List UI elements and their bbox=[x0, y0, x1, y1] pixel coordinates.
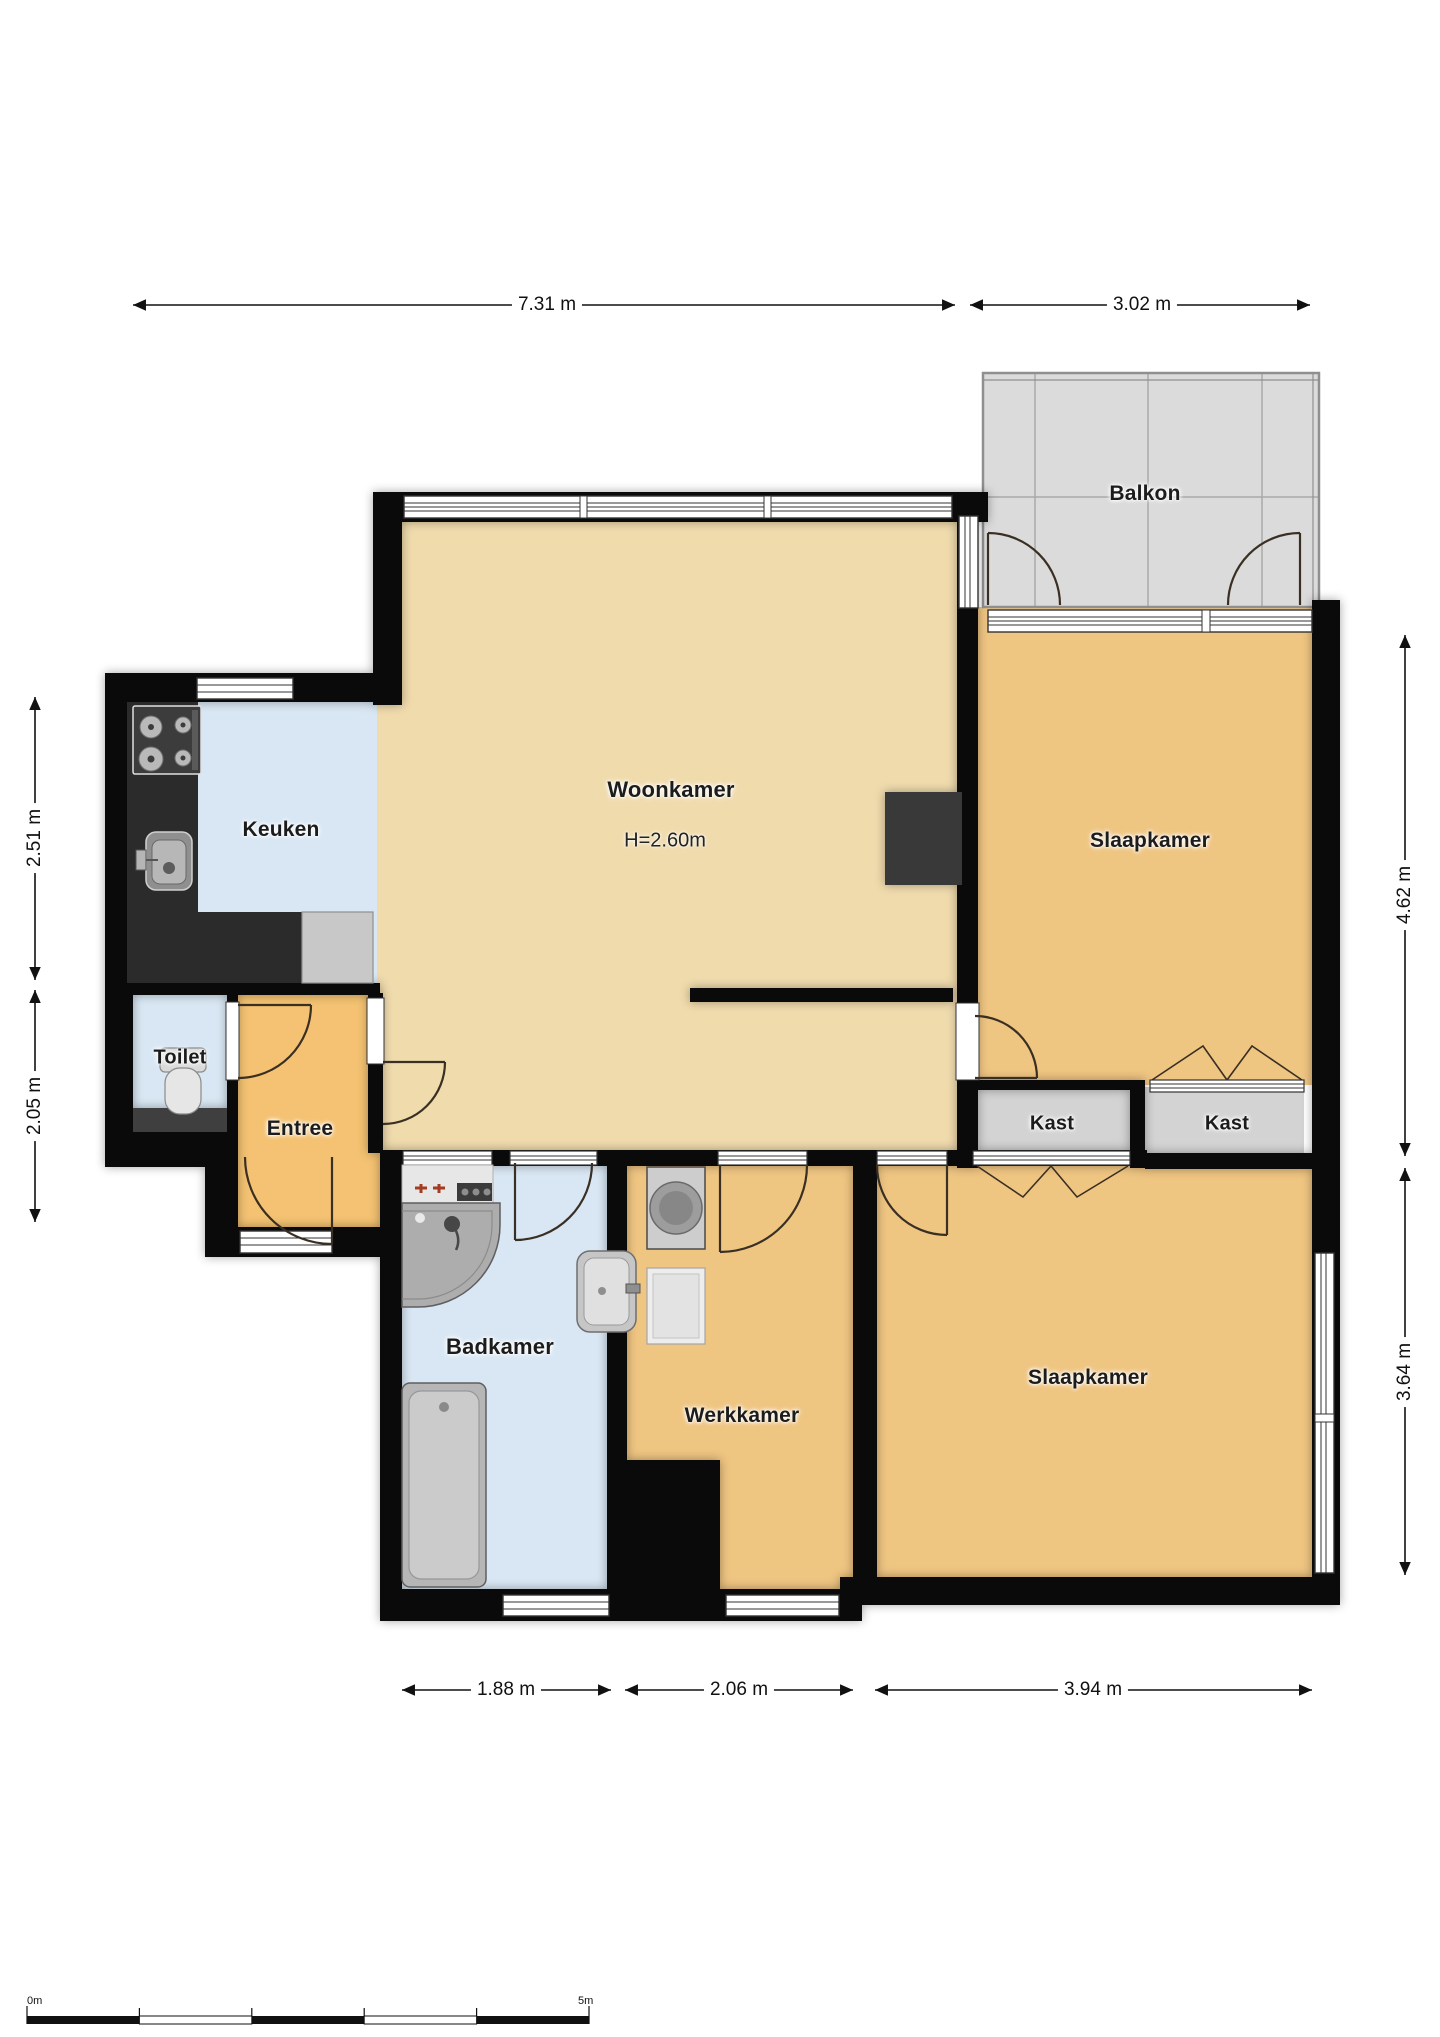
badkamer-floor bbox=[402, 1150, 610, 1590]
dim-bottom-badkamer: 1.88 m bbox=[471, 1679, 541, 1701]
werkkamer-window bbox=[726, 1595, 839, 1616]
dim-bottom-slaapkamer: 3.94 m bbox=[1058, 1679, 1128, 1701]
badkamer-window bbox=[503, 1595, 609, 1616]
scale-bar bbox=[27, 2006, 589, 2024]
keuken-label: Keuken bbox=[242, 818, 319, 842]
balkon-label: Balkon bbox=[1109, 482, 1180, 506]
scale-end-label: 5m bbox=[578, 1995, 593, 2007]
scale-start-label: 0m bbox=[27, 1995, 42, 2007]
dim-right-slaapkamer-boven: 4.62 m bbox=[1394, 860, 1416, 930]
kast-links-label: Kast bbox=[1030, 1113, 1074, 1136]
dim-top-main: 7.31 m bbox=[512, 294, 582, 316]
kast-rechts-label: Kast bbox=[1205, 1113, 1249, 1136]
keuken-floor bbox=[127, 690, 377, 995]
dim-bottom-werkkamer: 2.06 m bbox=[704, 1679, 774, 1701]
dim-left-entree: 2.05 m bbox=[24, 1071, 46, 1141]
slaapkamer-onder-window bbox=[1315, 1253, 1334, 1573]
slaapkamer-boven-label: Slaapkamer bbox=[1090, 829, 1210, 853]
woonkamer-label: Woonkamer bbox=[607, 777, 734, 803]
dim-left-keuken: 2.51 m bbox=[24, 803, 46, 873]
entree-label: Entree bbox=[267, 1117, 334, 1141]
dim-top-balkon: 3.02 m bbox=[1107, 294, 1177, 316]
werkkamer-label: Werkkamer bbox=[685, 1404, 800, 1428]
slaapkamer-onder-label: Slaapkamer bbox=[1028, 1366, 1148, 1390]
werkkamer-floor bbox=[625, 1150, 853, 1590]
toilet-label: Toilet bbox=[153, 1047, 206, 1070]
dim-right-slaapkamer-onder: 3.64 m bbox=[1394, 1337, 1416, 1407]
woonkamer-height-label: H=2.60m bbox=[624, 830, 706, 853]
badkamer-label: Badkamer bbox=[446, 1334, 554, 1360]
floor-plan: Balkon Woonkamer H=2.60m Slaapkamer Keuk… bbox=[0, 0, 1440, 2037]
